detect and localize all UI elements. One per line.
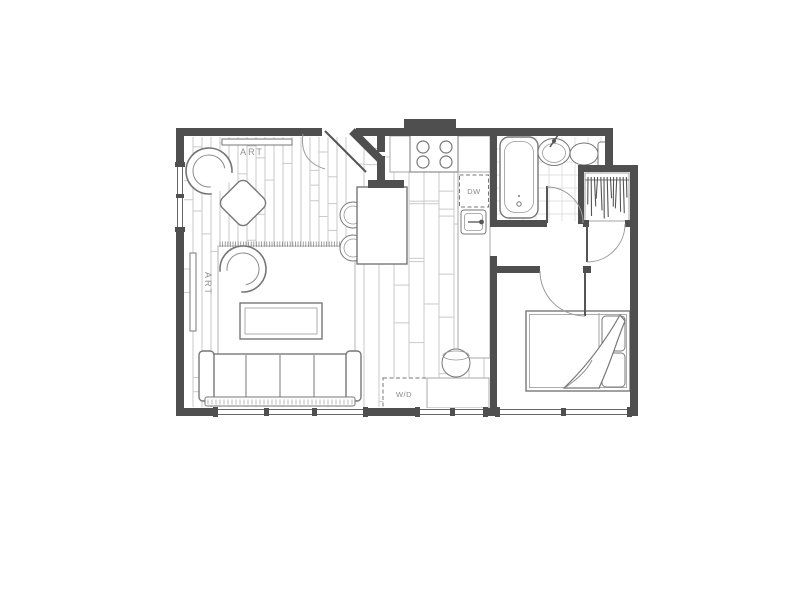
kitchen-island <box>357 187 407 264</box>
wall-bedroom-top <box>490 266 540 273</box>
wall-closet-bottom-stub <box>625 220 638 227</box>
art-label-top: ART <box>240 147 264 157</box>
wall-top-left <box>176 128 322 136</box>
kitchen-sink <box>461 210 486 234</box>
bathroom-sink <box>538 135 570 166</box>
window-kitchen-bottom <box>415 407 488 417</box>
bathtub <box>500 137 538 218</box>
bathtub-overflow <box>518 195 520 197</box>
bathroom-faucet-base <box>552 139 556 143</box>
dishwasher-label: DW <box>467 187 481 196</box>
wall-entry-vertical-a <box>377 132 385 152</box>
floor-plan: DW W/D <box>0 0 800 600</box>
bar-stool <box>442 349 470 377</box>
window-living-bottom <box>213 407 368 417</box>
sofa <box>199 351 361 406</box>
floor-plan-drawing: DW W/D <box>0 0 800 600</box>
armchair-round-1 <box>184 146 234 196</box>
washer-dryer-label: W/D <box>396 390 412 399</box>
wall-bedroom-left <box>490 256 497 408</box>
sofa-armrest-left <box>199 351 214 401</box>
wall-art-shelf-left <box>190 253 196 331</box>
wall-bathroom-bottom <box>490 220 547 227</box>
wall-kitchen-bathroom <box>490 136 497 222</box>
window-left <box>175 162 185 232</box>
counter-bottom <box>427 378 489 408</box>
kitchen-faucet-base <box>479 220 484 225</box>
bedroom-door <box>540 271 585 316</box>
wall-closet-top <box>578 165 638 172</box>
wall-island-cap <box>368 180 404 188</box>
bathroom-door <box>547 186 583 223</box>
wall-closet-left <box>578 167 584 224</box>
wall-top-right <box>370 128 613 136</box>
washer-dryer-closet: W/D <box>383 378 427 410</box>
closet <box>585 173 629 221</box>
closet-door <box>587 224 625 262</box>
wall-art-shelf-top <box>222 139 292 145</box>
stove-vent-bump <box>404 119 456 129</box>
wall-right <box>630 165 638 416</box>
sofa-armrest-right <box>346 351 361 401</box>
wall-bedroom-door-stub <box>583 266 591 273</box>
window-bedroom-bottom <box>495 407 632 417</box>
toilet <box>570 142 607 167</box>
bedroom <box>526 311 630 391</box>
dishwasher: DW <box>460 175 489 207</box>
kitchen: DW W/D <box>340 133 490 410</box>
stove <box>410 133 458 172</box>
toilet-bowl <box>570 143 598 165</box>
art-label-left: ART <box>203 272 213 296</box>
